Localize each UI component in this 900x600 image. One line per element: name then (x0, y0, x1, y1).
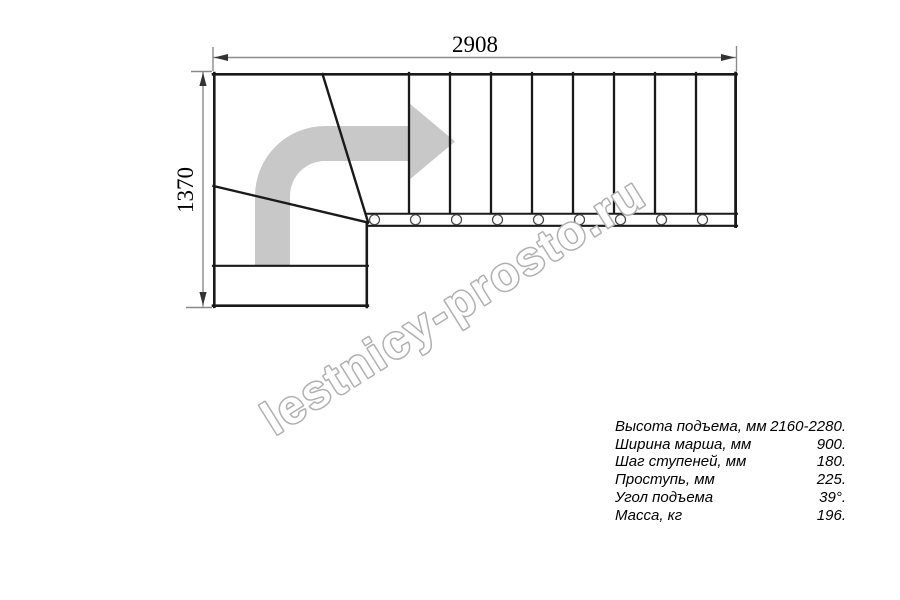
width-dimension: 2908 (213, 32, 737, 71)
spec-row-flight-width: Ширина марша, мм 900. (615, 436, 846, 454)
spec-value: 2160-2280. (770, 418, 846, 436)
spec-row-mass: Масса, кг 196. (615, 507, 846, 525)
baluster-circle (411, 215, 421, 225)
spec-label: Шаг ступеней, мм (615, 453, 746, 471)
spec-value: 196. (817, 507, 846, 525)
dim-arrowhead-down (199, 292, 206, 306)
spec-value: 180. (817, 453, 846, 471)
spec-row-tread: Проступь, мм 225. (615, 471, 846, 489)
specs-table: Высота подъема, мм 2160-2280. Ширина мар… (615, 418, 846, 524)
spec-label: Угол подъема (615, 489, 713, 507)
baluster-circle (657, 215, 667, 225)
baluster-circle (452, 215, 462, 225)
spec-label: Проступь, мм (615, 471, 715, 489)
winder-line-2 (214, 186, 369, 223)
spec-value: 39°. (819, 489, 846, 507)
spec-row-angle: Угол подъема 39°. (615, 489, 846, 507)
curved-right-arrow-icon (255, 103, 455, 266)
dim-arrowhead-up (199, 73, 206, 87)
height-dimension-label: 1370 (173, 167, 198, 213)
spec-label: Масса, кг (615, 507, 682, 525)
baluster-circle (493, 215, 503, 225)
spec-row-height: Высота подъема, мм 2160-2280. (615, 418, 846, 436)
spec-value: 900. (817, 436, 846, 454)
spec-row-step-rise: Шаг ступеней, мм 180. (615, 453, 846, 471)
spec-value: 225. (817, 471, 846, 489)
dim-arrowhead-right (721, 54, 735, 61)
baluster-circle (698, 215, 708, 225)
height-dimension: 1370 (173, 72, 212, 308)
width-dimension-label: 2908 (452, 32, 498, 57)
spec-label: Ширина марша, мм (615, 436, 751, 454)
baluster-circle (370, 215, 380, 225)
stair-plan-page: 2908 1370 lestnicy-prosto.ru Высота подъ… (0, 0, 900, 600)
spec-label: Высота подъема, мм (615, 418, 767, 436)
dim-arrowhead-left (214, 54, 228, 61)
